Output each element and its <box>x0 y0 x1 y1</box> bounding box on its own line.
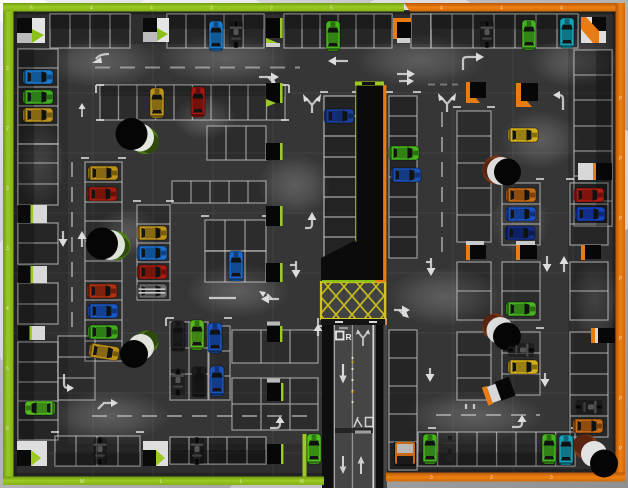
svg-text:3: 3 <box>6 246 9 252</box>
svg-text:M: M <box>80 479 84 485</box>
svg-text:4: 4 <box>500 6 503 12</box>
svg-text:4: 4 <box>90 6 93 12</box>
svg-text:R: R <box>346 332 352 342</box>
svg-text:3: 3 <box>430 475 433 481</box>
svg-text:2: 2 <box>6 66 9 72</box>
svg-text:5: 5 <box>30 6 33 12</box>
svg-text:6: 6 <box>6 366 9 372</box>
svg-text:4: 4 <box>440 6 443 12</box>
svg-text:L: L <box>240 479 243 485</box>
svg-text:L: L <box>160 479 163 485</box>
svg-text:3: 3 <box>550 475 553 481</box>
svg-text:5: 5 <box>330 6 333 12</box>
svg-text:4: 4 <box>150 6 153 12</box>
svg-text:2: 2 <box>270 6 273 12</box>
svg-text:N: N <box>300 479 304 485</box>
svg-text:4: 4 <box>560 6 563 12</box>
svg-text:6: 6 <box>6 426 9 432</box>
svg-text:3: 3 <box>210 6 213 12</box>
svg-text:4: 4 <box>6 306 9 312</box>
svg-text:3: 3 <box>6 186 9 192</box>
svg-text:3: 3 <box>490 475 493 481</box>
svg-text:2: 2 <box>6 126 9 132</box>
